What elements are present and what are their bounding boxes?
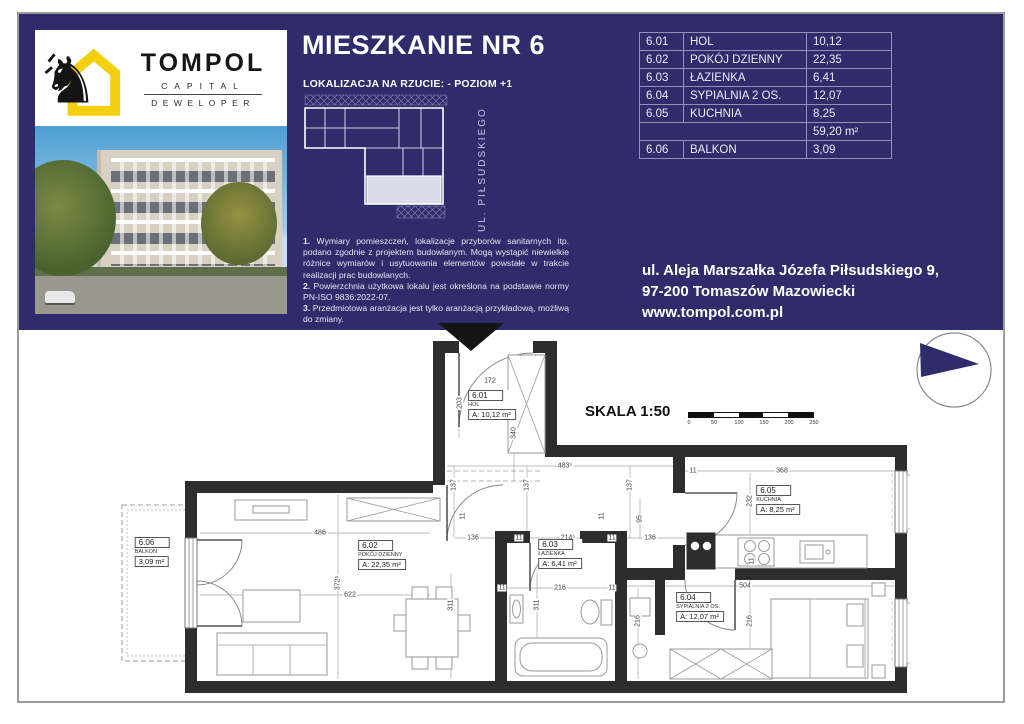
- table-cell-total: 59,20 m²: [807, 123, 892, 141]
- brand-card: ♞ TOMPOL CAPITAL DEWELOPER: [35, 30, 287, 314]
- room-name: BALKON: [135, 549, 157, 555]
- tompol-horse-house-icon: ♞: [43, 37, 125, 119]
- dimension-label: 11: [599, 511, 606, 520]
- scale-bar: 050100150200250: [688, 412, 828, 432]
- highlighted-unit: [367, 176, 441, 204]
- table-cell-room-name: KUCHNIA: [684, 105, 807, 123]
- legal-notes: 1. Wymiary pomieszczeń, lokalizacje przy…: [303, 236, 569, 325]
- scale-label: SKALA 1:50: [585, 403, 670, 420]
- bathroom-fixtures: [510, 595, 612, 676]
- table-cell-room-area: 3,09: [807, 141, 892, 159]
- dimension-label: 216: [747, 614, 754, 628]
- dimension-label: 11: [497, 585, 506, 592]
- table-row: 6.05KUCHNIA8,25: [640, 105, 892, 123]
- brand-sub-capital: CAPITAL: [161, 81, 245, 91]
- photo-car: [45, 291, 75, 303]
- table-row: 59,20 m²: [640, 123, 892, 141]
- table-cell-empty: [640, 123, 807, 141]
- brand-wordmark: TOMPOL CAPITAL DEWELOPER: [127, 49, 279, 108]
- dimension-label: 137: [524, 478, 531, 492]
- room-area-table: 6.01HOL10,126.02POKÓJ DZIENNY22,356.03ŁA…: [639, 32, 892, 159]
- room-name: SYPIALNIA 2 OS.: [676, 604, 720, 610]
- developer-address: ul. Aleja Marszałka Józefa Piłsudskiego …: [642, 260, 939, 323]
- table-cell-room-id: 6.03: [640, 69, 684, 87]
- room-area: A: 10,12 m²: [468, 409, 516, 420]
- room-label: 6.03ŁAZIENKAA: 6,41 m²: [538, 539, 582, 569]
- scale-bar-segment: [763, 413, 788, 417]
- legal-note: 1. Wymiary pomieszczeń, lokalizacje przy…: [303, 236, 569, 281]
- table-cell-room-id: 6.02: [640, 51, 684, 69]
- photo-tree: [201, 182, 277, 265]
- room-name: POKÓJ DZIENNY: [358, 552, 402, 558]
- table-row: 6.04SYPIALNIA 2 OS.12,07: [640, 87, 892, 105]
- dimension-label: 136: [466, 535, 480, 542]
- scale-bar-tick: 150: [759, 420, 768, 426]
- room-name: HOL: [468, 402, 479, 408]
- address-line: ul. Aleja Marszałka Józefa Piłsudskiego …: [642, 260, 939, 281]
- scale-bar-segment: [714, 413, 739, 417]
- dimension-label: 311: [534, 598, 541, 611]
- table-cell-room-area: 12,07: [807, 87, 892, 105]
- dimension-label: 136: [643, 535, 657, 542]
- dimension-label: 372⁵: [335, 575, 342, 592]
- room-number: 6.05: [756, 485, 791, 496]
- table-cell-room-area: 6,41: [807, 69, 892, 87]
- room-area: A: 6,41 m²: [538, 558, 582, 569]
- room-area: A: 12,07 m²: [676, 611, 724, 622]
- table-cell-room-id: 6.06: [640, 141, 684, 159]
- dimension-label: 172: [483, 378, 497, 385]
- dimension-label: 95: [637, 514, 644, 524]
- dimension-label: 504: [738, 583, 752, 590]
- dimension-label: 486: [313, 530, 327, 537]
- dimension-label: 11: [607, 585, 616, 592]
- scale-bar-tick: 50: [711, 420, 717, 426]
- flat-card-page: ♞ TOMPOL CAPITAL DEWELOPER: [0, 0, 1024, 724]
- room-label: 6.02POKÓJ DZIENNYA: 22,35 m²: [358, 540, 406, 570]
- brand-logo: ♞ TOMPOL CAPITAL DEWELOPER: [35, 30, 287, 126]
- room-number: 6.02: [358, 540, 393, 551]
- floor-plan-drawing: [110, 333, 910, 701]
- legal-note: 3. Przedmiotowa aranżacja jest tylko ara…: [303, 303, 569, 325]
- dimension-label: 340: [511, 426, 518, 440]
- table-row: 6.02POKÓJ DZIENNY22,35: [640, 51, 892, 69]
- table-cell-room-name: HOL: [684, 33, 807, 51]
- room-area: 3,09 m²: [135, 556, 169, 567]
- address-line: www.tompol.com.pl: [642, 302, 939, 323]
- room-label: 6.06BALKON3,09 m²: [135, 537, 170, 567]
- dimension-label: 216: [553, 585, 567, 592]
- table-row: 6.01HOL10,12: [640, 33, 892, 51]
- dimension-label: 622: [343, 592, 357, 599]
- table-cell-room-name: POKÓJ DZIENNY: [684, 51, 807, 69]
- room-number: 6.06: [135, 537, 170, 548]
- table-cell-room-area: 10,12: [807, 33, 892, 51]
- room-number: 6.04: [676, 592, 711, 603]
- living-room-furniture: [217, 498, 470, 675]
- table-cell-room-id: 6.04: [640, 87, 684, 105]
- scale-bar-segments: [688, 412, 814, 418]
- room-number: 6.03: [538, 539, 573, 550]
- room-name: KUCHNIA: [756, 497, 781, 503]
- table-row: 6.06BALKON3,09: [640, 141, 892, 159]
- scale-bar-segment: [788, 413, 813, 417]
- room-label: 6.01HOLA: 10,12 m²: [468, 390, 516, 420]
- table-cell-room-area: 22,35: [807, 51, 892, 69]
- room-number: 6.01: [468, 390, 503, 401]
- brand-sub-deweloper: DEWELOPER: [151, 98, 255, 108]
- scale-bar-tick: 200: [784, 420, 793, 426]
- brand-divider: [144, 94, 262, 95]
- address-line: 97-200 Tomaszów Mazowiecki: [642, 281, 939, 302]
- scale-bar-tick: 100: [734, 420, 743, 426]
- room-area: A: 22,35 m²: [358, 559, 406, 570]
- utility-shaft: [630, 598, 650, 658]
- table-cell-room-area: 8,25: [807, 105, 892, 123]
- table-cell-room-name: BALKON: [684, 141, 807, 159]
- dimension-label: 11: [688, 468, 697, 475]
- page-title: MIESZKANIE NR 6: [302, 30, 545, 61]
- scale-bar-segment: [739, 413, 764, 417]
- dimension-label: 483⁵: [557, 463, 574, 470]
- table-row: 6.03ŁAZIENKA6,41: [640, 69, 892, 87]
- brand-name: TOMPOL: [141, 49, 265, 78]
- scale-bar-segment: [689, 413, 714, 417]
- svg-text:♞: ♞: [43, 45, 99, 119]
- dimension-label: 311: [448, 598, 455, 611]
- table-cell-room-id: 6.01: [640, 33, 684, 51]
- floor-plan: 172203340483⁵137137137111113611214⁵11136…: [110, 333, 910, 701]
- dimension-label: 11: [460, 511, 467, 520]
- room-name: ŁAZIENKA: [538, 551, 565, 557]
- dimension-label: 11: [607, 535, 616, 542]
- header-band: ♞ TOMPOL CAPITAL DEWELOPER: [19, 14, 1003, 330]
- street-name-label: UL. PIŁSUDSKIEGO: [477, 102, 488, 232]
- dimension-label: 137: [627, 478, 634, 492]
- location-on-plan-label: LOKALIZACJA NA RZUCIE: - POZIOM +1: [303, 78, 512, 90]
- table-cell-room-name: ŁAZIENKA: [684, 69, 807, 87]
- level-locator-plan: [303, 94, 471, 222]
- dimension-label: 368: [775, 468, 789, 475]
- table-cell-room-id: 6.05: [640, 105, 684, 123]
- room-label: 6.05KUCHNIAA: 8,25 m²: [756, 485, 800, 515]
- table-cell-room-name: SYPIALNIA 2 OS.: [684, 87, 807, 105]
- dimension-label: 11: [514, 535, 523, 542]
- legal-note: 2. Powierzchnia użytkowa lokalu jest okr…: [303, 281, 569, 303]
- dimension-label: 203: [457, 396, 464, 410]
- room-area: A: 8,25 m²: [756, 504, 800, 515]
- dimension-label: 216: [635, 614, 642, 628]
- dimension-label: 11: [749, 556, 756, 565]
- scale-bar-tick: 250: [809, 420, 818, 426]
- scale-bar-tick: 0: [687, 420, 690, 426]
- building-photo: [35, 126, 287, 314]
- dimension-label: 232: [747, 494, 754, 508]
- north-arrow-icon: [905, 330, 1001, 412]
- dimension-label: 137: [451, 478, 458, 492]
- room-label: 6.04SYPIALNIA 2 OS.A: 12,07 m²: [676, 592, 724, 622]
- kitchen-fixtures: [687, 533, 867, 569]
